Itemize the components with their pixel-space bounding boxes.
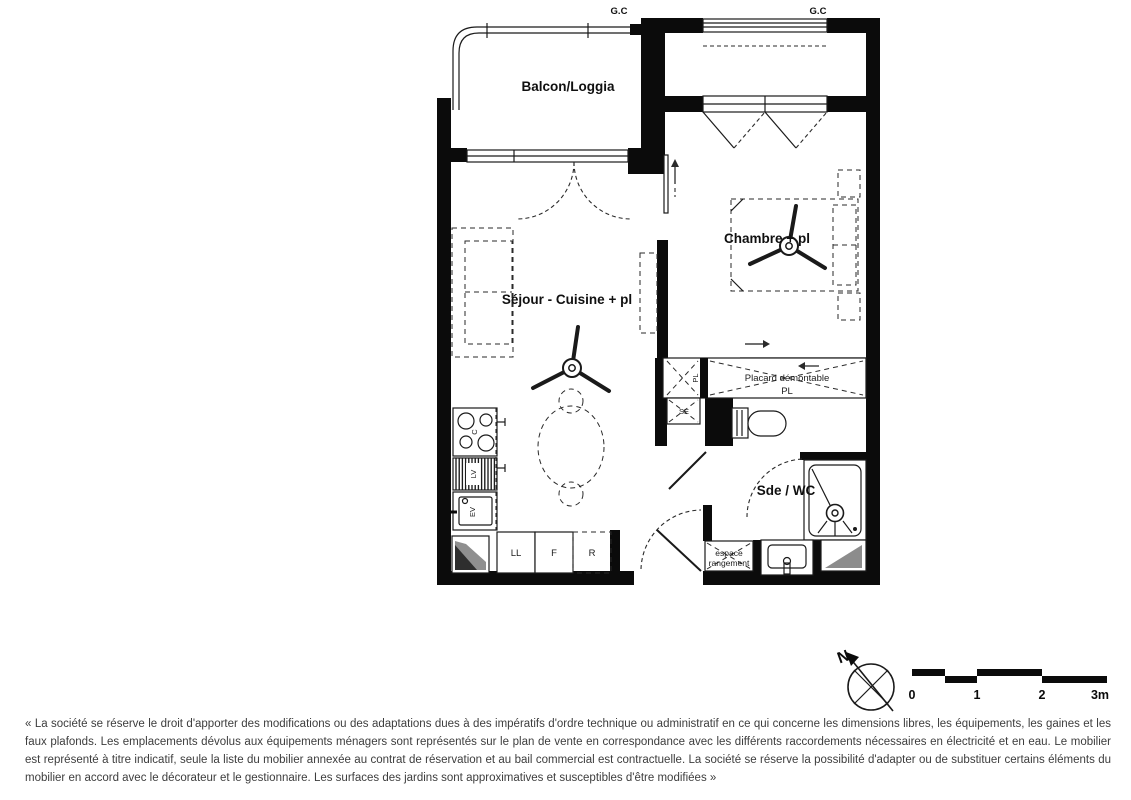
balcony-railing-icon — [453, 23, 651, 110]
scale-tick-2: 2 — [1039, 688, 1046, 702]
legal-disclaimer-text: « La société se réserve le droit d'appor… — [25, 716, 1111, 788]
sink-label: EV — [468, 507, 477, 517]
dining-table — [538, 389, 604, 506]
washbasin-icon — [761, 540, 813, 575]
scale-tick-0: 0 — [909, 688, 916, 702]
living-closet-dashed — [640, 253, 657, 333]
scale-tick-3: 3m — [1091, 688, 1109, 702]
entry-door-icon — [641, 510, 701, 571]
bay-window-icon — [467, 150, 631, 219]
gc-left-label: G.C — [611, 6, 628, 17]
dishwasher-label: LV — [469, 470, 478, 479]
bathroom-label: Sde / WC — [757, 483, 816, 498]
washing-machine-label: LL — [511, 548, 522, 559]
small-closet-label: PL — [691, 373, 700, 382]
sliding-arrow-icon — [740, 340, 866, 358]
balcony-label: Balcon/Loggia — [521, 79, 614, 94]
closet-label-pl: PL — [781, 386, 793, 397]
fridge-label: R — [589, 548, 596, 559]
bedroom-window-icon — [703, 96, 827, 148]
toilet-icon — [732, 408, 786, 438]
shower-icon — [804, 460, 866, 540]
storage-label-2: rangement — [709, 558, 750, 568]
kitchen-shaft-icon — [452, 536, 489, 573]
scale-tick-1: 1 — [974, 688, 981, 702]
north-label: N — [835, 647, 852, 667]
floor-plan: C LV EV LL F R — [0, 0, 1131, 712]
garde-corps-window-icon — [703, 19, 827, 46]
living-kitchen-label: Séjour - Cuisine + pl — [502, 292, 632, 307]
cooktop-label: C — [470, 429, 479, 435]
bedroom-label: Chambre + pl — [724, 231, 810, 246]
bedroom-door-icon — [664, 155, 679, 213]
ceiling-fan-icon — [533, 327, 609, 391]
oven-label: F — [551, 548, 557, 559]
closet-label: Placard démontable — [745, 373, 830, 384]
gc-right-label: G.C — [810, 6, 827, 17]
storage-label-1: espace — [715, 548, 743, 558]
bath-shaft-icon — [821, 540, 866, 571]
north-compass-icon — [846, 652, 894, 711]
se-unit-label: SE — [679, 407, 689, 416]
scale-bar: 0 1 2 3m — [909, 669, 1110, 702]
